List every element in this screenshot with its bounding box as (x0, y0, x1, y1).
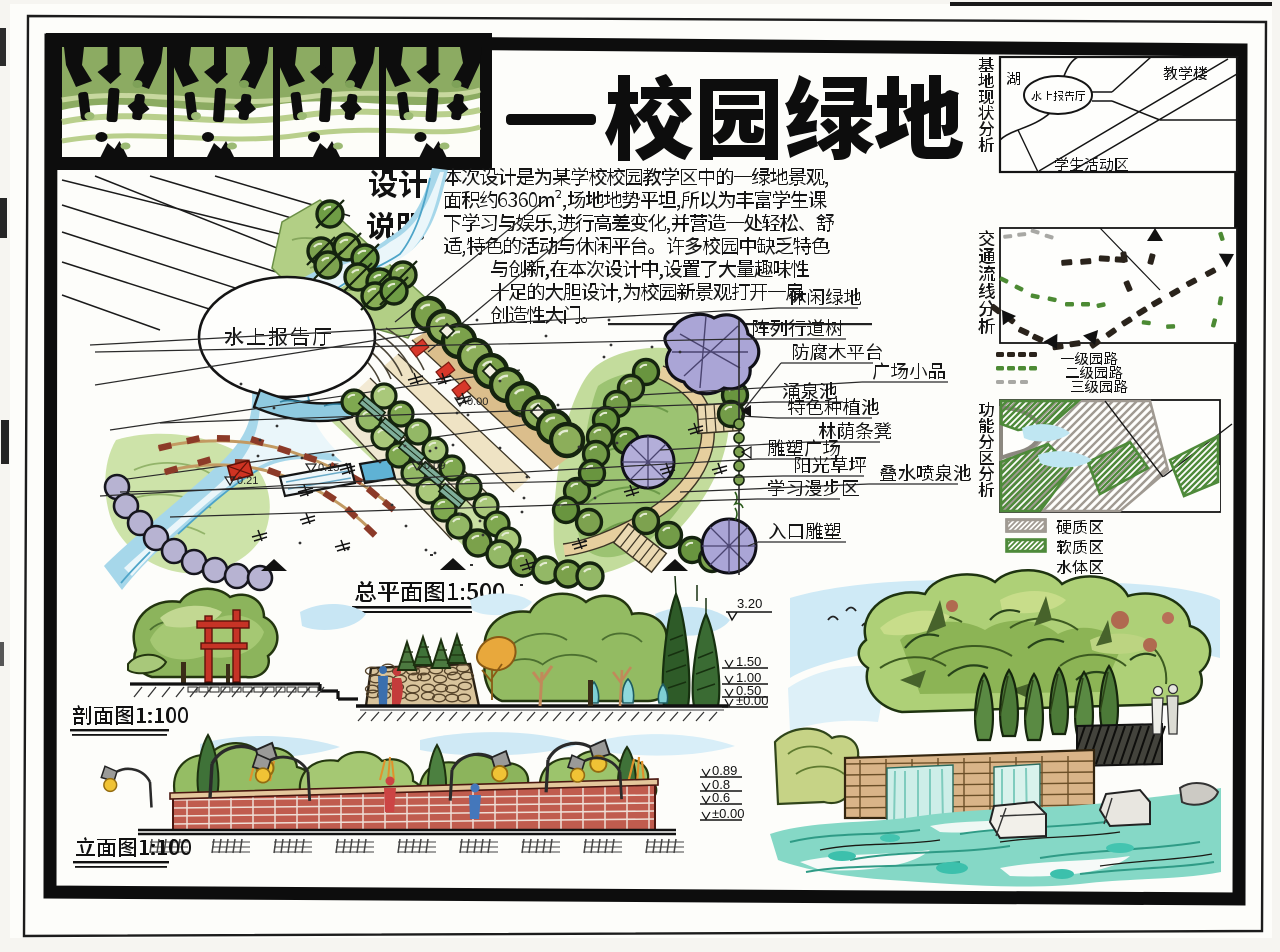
svg-text:0.09: 0.09 (424, 460, 445, 472)
svg-text:0.6: 0.6 (712, 790, 730, 805)
svg-text:0.89: 0.89 (712, 763, 737, 778)
svg-text:0.15: 0.15 (318, 462, 339, 474)
svg-text:0.00: 0.00 (467, 396, 488, 408)
svg-text:1.50: 1.50 (736, 654, 761, 669)
svg-text:±0.00: ±0.00 (736, 693, 768, 708)
svg-text:0.21: 0.21 (237, 475, 258, 487)
svg-text:±0.00: ±0.00 (712, 806, 744, 821)
svg-text:3.20: 3.20 (737, 596, 762, 611)
